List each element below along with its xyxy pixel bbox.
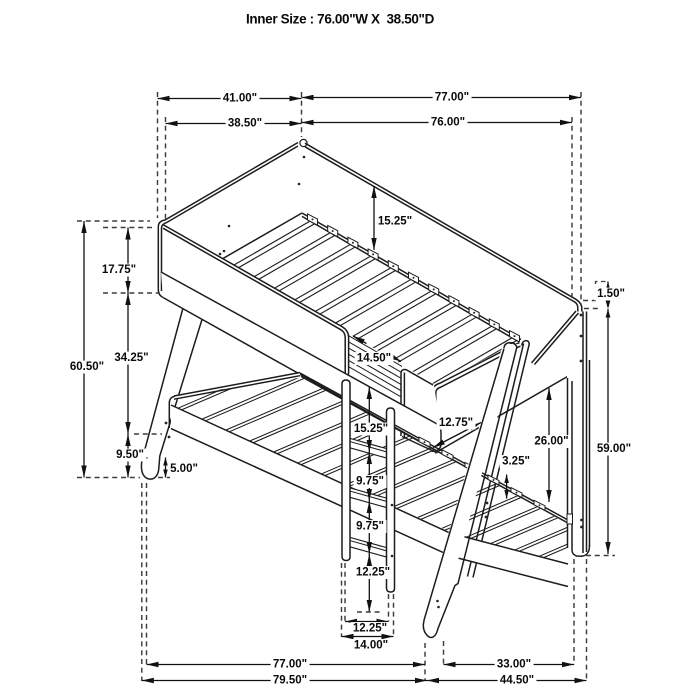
svg-text:14.50": 14.50" — [357, 353, 391, 365]
svg-text:12.75": 12.75" — [439, 417, 473, 429]
svg-text:41.00": 41.00" — [223, 93, 257, 105]
svg-text:77.00": 77.00" — [273, 659, 307, 671]
svg-text:9.50": 9.50" — [116, 449, 144, 461]
svg-text:34.25": 34.25" — [114, 352, 148, 364]
svg-text:1.50": 1.50" — [597, 288, 625, 300]
svg-text:26.00": 26.00" — [534, 436, 568, 448]
svg-text:33.00": 33.00" — [497, 659, 531, 671]
svg-text:38.50": 38.50" — [228, 118, 262, 130]
svg-text:79.50": 79.50" — [273, 675, 307, 687]
svg-text:15.25": 15.25" — [378, 216, 412, 228]
svg-text:15.25": 15.25" — [354, 423, 388, 435]
svg-text:60.50": 60.50" — [70, 361, 104, 373]
svg-text:76.00": 76.00" — [431, 117, 465, 129]
svg-text:14.00": 14.00" — [354, 640, 388, 652]
svg-text:5.00": 5.00" — [170, 463, 198, 475]
svg-text:9.75": 9.75" — [356, 476, 384, 488]
svg-text:17.75": 17.75" — [102, 264, 136, 276]
svg-text:59.00": 59.00" — [597, 443, 631, 455]
svg-text:3.25": 3.25" — [502, 456, 530, 468]
svg-text:Inner Size : 76.00"W X 38.50": Inner Size : 76.00"W X 38.50"D — [246, 12, 435, 27]
svg-text:12.25": 12.25" — [356, 567, 390, 579]
svg-text:12.25": 12.25" — [353, 623, 387, 635]
svg-text:9.75": 9.75" — [356, 521, 384, 533]
svg-text:44.50": 44.50" — [500, 675, 534, 687]
svg-text:77.00": 77.00" — [435, 92, 469, 104]
